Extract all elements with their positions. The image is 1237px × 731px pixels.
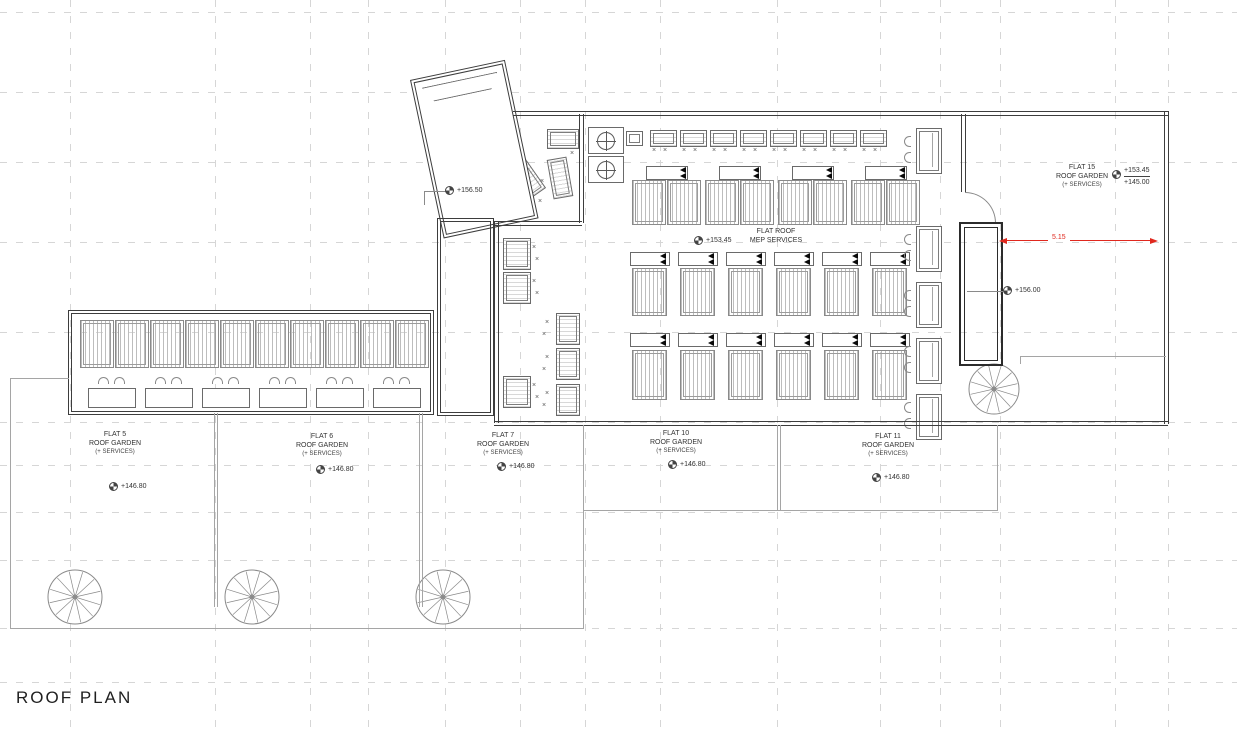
garden-party-wall — [217, 413, 218, 607]
airflow-mark: × — [663, 147, 667, 154]
vrf-unit — [556, 348, 580, 380]
flat-roof-sub: MEP SERVICES — [750, 236, 802, 245]
drawing-title: ROOF PLAN — [16, 688, 132, 708]
flat-level-value: +146.80 — [509, 463, 535, 470]
flat-roof-name: FLAT ROOF — [750, 227, 802, 236]
condenser-coil — [740, 180, 774, 225]
plant-glyph-icon — [904, 346, 911, 357]
spiral-stair-icon — [224, 569, 280, 625]
flat-services: (+ SERVICES) — [477, 449, 529, 458]
flat6-level: +146.80 — [316, 465, 354, 474]
parapet-return — [1020, 356, 1021, 364]
flow-arrow-icon — [756, 340, 762, 346]
flow-arrow-icon — [756, 259, 762, 265]
garden-boundary — [10, 378, 11, 629]
level-marker-icon — [316, 465, 325, 474]
flat-level-lower: +145.00 — [1124, 178, 1150, 187]
flat-level-value: +146.80 — [328, 466, 354, 473]
flow-arrow-icon — [826, 173, 832, 179]
flat-name: FLAT 11 — [862, 432, 914, 441]
flat-type: ROOF GARDEN — [650, 438, 702, 447]
grid-line-horizontal — [0, 560, 1237, 561]
flat-name: FLAT 15 — [1056, 163, 1108, 172]
fan-unit-box — [588, 156, 624, 183]
airflow-mark: × — [540, 178, 544, 185]
level-marker-icon — [497, 462, 506, 471]
grid-line-vertical — [520, 0, 521, 731]
flat-type: ROOF GARDEN — [1056, 172, 1108, 181]
leader-line — [424, 191, 425, 205]
plant-glyph-icon — [904, 250, 911, 261]
spiral-stair-icon — [968, 363, 1020, 415]
airflow-mark: × — [682, 147, 686, 154]
core-level: +156.00 — [1003, 286, 1041, 295]
airflow-mark: × — [783, 147, 787, 154]
ac-unit — [800, 130, 827, 147]
ac-unit — [830, 130, 857, 147]
flow-arrow-icon — [900, 340, 906, 346]
parapet-line — [1020, 356, 1166, 357]
main-roof-bottom-wall — [494, 421, 1168, 426]
flat7-level: +146.80 — [497, 462, 535, 471]
flat10-label: FLAT 10 ROOF GARDEN (+ SERVICES) — [650, 429, 702, 456]
flat-type: ROOF GARDEN — [862, 441, 914, 450]
pv-strip-outline — [68, 310, 434, 415]
condenser-coil — [886, 180, 920, 225]
airflow-mark: × — [832, 147, 836, 154]
dimension-arrow-left — [999, 238, 1007, 244]
ac-unit — [710, 130, 737, 147]
garden-party-wall — [780, 425, 781, 511]
airflow-mark: × — [535, 394, 539, 401]
airflow-mark: × — [723, 147, 727, 154]
condenser-coil — [632, 268, 667, 316]
garden-boundary — [10, 628, 584, 629]
vrf-unit — [556, 313, 580, 345]
grid-line-vertical — [1115, 0, 1116, 731]
grid-line-horizontal — [0, 12, 1237, 13]
level-marker-icon — [668, 460, 677, 469]
roof-plan-drawing: ××××××××××××××××××××××××××××××× 5.15 +15… — [0, 0, 1237, 731]
condenser-coil — [824, 268, 859, 316]
lift-core-outline — [959, 222, 1003, 366]
fan-icon — [597, 132, 615, 150]
airflow-mark: × — [532, 244, 536, 251]
airflow-mark: × — [862, 147, 866, 154]
ac-unit — [740, 130, 767, 147]
tower-level: +156.50 — [445, 186, 483, 195]
flow-arrow-icon — [804, 340, 810, 346]
airflow-mark: × — [813, 147, 817, 154]
plant-glyph-icon — [904, 290, 911, 301]
flat6-label: FLAT 6 ROOF GARDEN (+ SERVICES) — [296, 432, 348, 459]
flow-arrow-icon — [660, 340, 666, 346]
garden-boundary — [583, 510, 998, 511]
flat15-levels: +153.45 +145.00 — [1112, 166, 1150, 187]
small-plant-unit — [626, 131, 643, 146]
mep-unit — [916, 128, 942, 174]
flat10-level: +146.80 — [668, 460, 706, 469]
airflow-mark: × — [712, 147, 716, 154]
flow-arrow-icon — [660, 259, 666, 265]
fan-icon — [597, 161, 615, 179]
condenser-coil — [872, 350, 907, 400]
ac-unit — [680, 130, 707, 147]
mep-unit — [916, 394, 942, 440]
airflow-mark: × — [693, 147, 697, 154]
condenser-coil — [632, 350, 667, 400]
flat-services: (+ SERVICES) — [89, 448, 141, 457]
mep-unit-line — [932, 133, 933, 167]
dimension-value: 5.15 — [1048, 234, 1070, 241]
plant-glyph-icon — [904, 362, 911, 373]
condenser-coil — [813, 180, 847, 225]
flat-name: FLAT 10 — [650, 429, 702, 438]
condenser-coil — [728, 350, 763, 400]
core-level-value: +156.00 — [1015, 287, 1041, 294]
airflow-mark: × — [742, 147, 746, 154]
airflow-mark: × — [545, 390, 549, 397]
flat-type: ROOF GARDEN — [89, 439, 141, 448]
condenser-coil — [872, 268, 907, 316]
airflow-mark: × — [538, 198, 542, 205]
flat-name: FLAT 5 — [89, 430, 141, 439]
condenser-coil — [705, 180, 739, 225]
airflow-mark: × — [535, 256, 539, 263]
level-marker-icon — [694, 236, 703, 245]
condenser-coil — [680, 350, 715, 400]
plant-glyph-icon — [904, 136, 911, 147]
grid-line-horizontal — [0, 92, 1237, 93]
airflow-mark: × — [652, 147, 656, 154]
condenser-coil — [778, 180, 812, 225]
ac-unit — [770, 130, 797, 147]
level-marker-icon — [1112, 170, 1121, 179]
condenser-coil — [851, 180, 885, 225]
flat-name: FLAT 7 — [477, 431, 529, 440]
flat-services: (+ SERVICES) — [1056, 181, 1108, 190]
grid-line-vertical — [585, 0, 586, 731]
condenser-coil — [667, 180, 701, 225]
condenser-coil — [776, 268, 811, 316]
door-swing-arc — [965, 192, 996, 223]
garden-party-wall — [777, 425, 778, 511]
airflow-mark: × — [542, 402, 546, 409]
spiral-stair-icon — [47, 569, 103, 625]
airflow-mark: × — [545, 319, 549, 326]
flat5-level: +146.80 — [109, 482, 147, 491]
flat-level-value: +146.80 — [884, 474, 910, 481]
mep-unit — [916, 338, 942, 384]
mep-unit-line — [932, 343, 933, 377]
west-bay-left-wall — [494, 222, 499, 423]
airflow-mark: × — [542, 366, 546, 373]
garden-boundary — [10, 378, 69, 379]
plant-glyph-icon — [904, 306, 911, 317]
condenser-coil — [776, 350, 811, 400]
flat-roof-level: +153.45 — [694, 236, 732, 245]
spiral-stair-icon — [415, 569, 471, 625]
ac-unit — [650, 130, 677, 147]
ac-unit — [860, 130, 887, 147]
airflow-mark: × — [535, 290, 539, 297]
flat-type: ROOF GARDEN — [477, 440, 529, 449]
flow-arrow-icon — [680, 173, 686, 179]
airflow-mark: × — [532, 278, 536, 285]
flat-level-value: +146.80 — [680, 461, 706, 468]
west-bay-top-wall — [494, 221, 582, 226]
grid-line-horizontal — [0, 242, 1237, 243]
main-roof-right-wall — [1164, 111, 1169, 424]
garden-boundary — [997, 425, 998, 511]
vrf-unit — [503, 272, 531, 304]
flat11-level: +146.80 — [872, 473, 910, 482]
dimension-arrow-right — [1150, 238, 1158, 244]
level-marker-icon — [872, 473, 881, 482]
vrf-unit — [556, 384, 580, 416]
flat15-label: FLAT 15 ROOF GARDEN (+ SERVICES) — [1056, 163, 1108, 190]
flat-services: (+ SERVICES) — [862, 450, 914, 459]
mep-unit-line — [932, 399, 933, 433]
vrf-unit — [503, 238, 531, 270]
mep-unit — [916, 282, 942, 328]
condenser-coil — [728, 268, 763, 316]
level-marker-icon — [1003, 286, 1012, 295]
stair-shaft-outline — [437, 218, 494, 416]
garden-party-wall — [214, 413, 215, 607]
flat7-label: FLAT 7 ROOF GARDEN (+ SERVICES) — [477, 431, 529, 458]
plant-glyph-icon — [904, 402, 911, 413]
flat-roof-label: FLAT ROOF MEP SERVICES — [750, 227, 802, 245]
flow-arrow-icon — [708, 259, 714, 265]
airflow-mark: × — [570, 150, 574, 157]
grid-line-horizontal — [0, 682, 1237, 683]
leader-line — [967, 291, 1003, 292]
airflow-mark: × — [873, 147, 877, 154]
mep-unit — [916, 226, 942, 272]
tower-rooflight — [422, 72, 501, 104]
airflow-mark: × — [532, 382, 536, 389]
garden-party-wall — [422, 413, 423, 607]
airflow-mark: × — [802, 147, 806, 154]
plant-divider-wall — [579, 114, 584, 223]
dimension-line — [1007, 240, 1150, 241]
flow-arrow-icon — [900, 259, 906, 265]
mep-unit-line — [932, 287, 933, 321]
flow-arrow-icon — [852, 340, 858, 346]
condenser-coil — [632, 180, 666, 225]
airflow-mark: × — [542, 331, 546, 338]
flow-arrow-icon — [708, 340, 714, 346]
plant-glyph-icon — [904, 234, 911, 245]
flow-arrow-icon — [753, 173, 759, 179]
core-wall-segment — [961, 114, 966, 192]
flat-level-value: +146.80 — [121, 483, 147, 490]
flat-name: FLAT 6 — [296, 432, 348, 441]
pump-unit — [547, 129, 579, 149]
condenser-coil — [680, 268, 715, 316]
flow-arrow-icon — [804, 259, 810, 265]
leader-line — [424, 191, 446, 192]
vrf-unit — [503, 376, 531, 408]
garden-boundary — [583, 425, 584, 629]
airflow-mark: × — [545, 354, 549, 361]
garden-party-wall — [419, 413, 420, 607]
level-marker-icon — [445, 186, 454, 195]
main-roof-top-wall — [513, 111, 1168, 116]
flow-arrow-icon — [852, 259, 858, 265]
grid-line-horizontal — [0, 465, 1237, 466]
tower-level-value: +156.50 — [457, 187, 483, 194]
airflow-mark: × — [753, 147, 757, 154]
flat-type: ROOF GARDEN — [296, 441, 348, 450]
flat-level-upper: +153.45 — [1124, 166, 1150, 177]
flat-services: (+ SERVICES) — [296, 450, 348, 459]
airflow-mark: × — [843, 147, 847, 154]
condenser-coil — [824, 350, 859, 400]
flat11-label: FLAT 11 ROOF GARDEN (+ SERVICES) — [862, 432, 914, 459]
flat5-label: FLAT 5 ROOF GARDEN (+ SERVICES) — [89, 430, 141, 457]
plant-glyph-icon — [904, 152, 911, 163]
fan-unit-box — [588, 127, 624, 154]
flat-services: (+ SERVICES) — [650, 447, 702, 456]
flow-arrow-icon — [899, 173, 905, 179]
flat-roof-level-value: +153.45 — [706, 237, 732, 244]
level-marker-icon — [109, 482, 118, 491]
airflow-mark: × — [772, 147, 776, 154]
grid-line-horizontal — [0, 512, 1237, 513]
mep-unit-line — [932, 231, 933, 265]
